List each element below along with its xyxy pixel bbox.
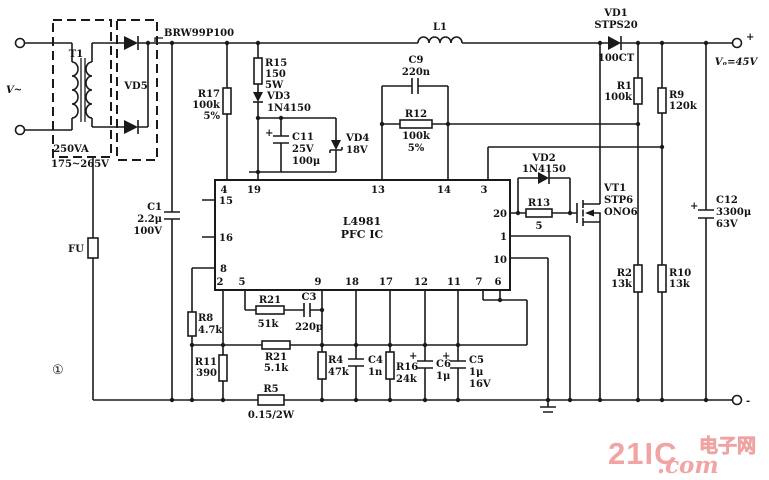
mosfet-arrow <box>585 210 594 217</box>
r5-value: 0.15/2W <box>248 410 295 421</box>
r5-name: R5 <box>263 384 278 395</box>
r9-name: R9 <box>669 90 684 101</box>
r9-icon <box>658 88 666 113</box>
c11-value: 100μ <box>292 156 320 167</box>
c6-value: 1μ <box>436 371 450 382</box>
r12-tol: 5% <box>408 143 425 154</box>
c12-wires <box>698 43 714 400</box>
output-terminal-plus <box>733 39 742 48</box>
r21a-icon <box>256 306 284 314</box>
pin-2: 2 <box>217 277 224 288</box>
c5-plus: + <box>442 351 450 362</box>
c1-voltage: 100V <box>133 226 162 237</box>
pin-12: 12 <box>414 277 428 288</box>
r4-value: 47k <box>328 367 350 378</box>
vd3-part: 1N4150 <box>267 103 311 114</box>
r10-icon <box>658 265 666 292</box>
c9-value: 220n <box>402 67 431 78</box>
r1-name: R1 <box>617 81 632 92</box>
ic-name: L4981 <box>343 215 381 228</box>
c4-value: 1n <box>368 367 383 378</box>
output-voltage-label: Vₒ=45V <box>715 57 759 68</box>
c3-value: 220p <box>295 322 323 333</box>
watermark-suffix: .com <box>657 452 719 479</box>
transformer-rating: 250VA <box>53 144 89 155</box>
r21b-name: R21 <box>265 352 287 363</box>
r8-value: 4.7k <box>198 325 223 336</box>
transformer-core <box>81 58 85 122</box>
c1-value: 2.2μ <box>137 214 162 225</box>
figure-index: ① <box>52 363 64 378</box>
r21b-icon <box>262 341 290 349</box>
dc-bus: L1 VD1 STPS20 100CT <box>418 8 732 64</box>
vd2-part: 1N4150 <box>522 164 566 175</box>
l1-label: L1 <box>433 22 447 33</box>
transformer-box <box>53 20 111 157</box>
ic-l4981: L4981 PFC IC 4 19 13 14 3 15 16 8 20 1 1… <box>192 180 510 290</box>
c3-name: C3 <box>302 292 317 303</box>
r13-icon <box>526 209 552 217</box>
r2-value: 13k <box>611 279 633 290</box>
r21b-value: 5.1k <box>264 363 289 374</box>
r1-icon <box>634 78 642 104</box>
r10-name: R10 <box>669 268 691 279</box>
input-wires <box>25 43 419 130</box>
pin-7: 7 <box>476 277 483 288</box>
vd2-name: VD2 <box>531 153 555 164</box>
r17-icon <box>223 88 231 114</box>
c11-voltage: 25V <box>292 144 314 155</box>
fuse-label: FU <box>68 244 84 255</box>
vd4-name: VD4 <box>345 133 369 144</box>
r15-power: 5W <box>265 80 284 91</box>
r16-value: 24k <box>396 374 418 385</box>
c12-voltage: 63V <box>716 219 738 230</box>
pin-11: 11 <box>447 277 461 288</box>
r11-icon <box>219 355 227 381</box>
pin-14: 14 <box>437 185 451 196</box>
watermark-21ic: 21IC 电子网 .com <box>608 434 756 479</box>
input-terminal-bottom <box>16 126 25 135</box>
output-minus-sign: - <box>746 396 750 407</box>
pin-19: 19 <box>247 185 261 196</box>
diode-vd1-icon <box>608 36 621 50</box>
ic-type: PFC IC <box>341 228 384 241</box>
r15-name: R15 <box>265 58 287 69</box>
vd4-voltage: 18V <box>346 145 368 156</box>
vt1-part1: STP6 <box>604 195 633 206</box>
bridge-diode-bottom-icon <box>124 120 138 134</box>
r10-value: 13k <box>669 279 691 290</box>
pin-9: 9 <box>315 277 322 288</box>
r15-value: 150 <box>265 69 286 80</box>
diode-vd3-icon <box>253 92 263 102</box>
return-wires-right <box>510 236 570 412</box>
input-range: 175~265V <box>51 159 109 170</box>
r12-icon <box>400 120 432 128</box>
c12-value: 3300μ <box>716 207 751 218</box>
c4-name: C4 <box>368 355 383 366</box>
pin-5: 5 <box>239 277 246 288</box>
c12-plus: + <box>690 201 698 212</box>
vt1-part2: ONO6 <box>604 207 638 218</box>
output-plus-sign: + <box>746 32 754 43</box>
r13-value: 5 <box>536 221 543 232</box>
c5-voltage: 16V <box>469 379 491 390</box>
c1-name: C1 <box>147 202 162 213</box>
pin-3: 3 <box>481 185 488 196</box>
c11-name: C11 <box>292 132 314 143</box>
inductor-l1-icon <box>418 37 462 43</box>
r16-name: R16 <box>396 362 418 373</box>
bridge-diode-top-icon <box>124 36 138 50</box>
pin-1: 1 <box>500 232 507 243</box>
pin-10: 10 <box>493 255 507 266</box>
c5-name: C5 <box>469 355 484 366</box>
r15-icon <box>254 58 262 84</box>
c5-value: 1μ <box>469 367 483 378</box>
pin-17: 17 <box>379 277 393 288</box>
r17-name: R17 <box>198 89 220 100</box>
r17-value: 100k <box>192 100 221 111</box>
transformer-primary-coil <box>72 62 78 118</box>
r12-name: R12 <box>405 109 427 120</box>
r8-icon <box>188 312 196 336</box>
pin-8: 8 <box>220 264 227 275</box>
input-voltage-label: V~ <box>6 85 22 96</box>
r11-value: 390 <box>196 368 217 379</box>
r13-name: R13 <box>528 198 550 209</box>
resistor-r17: R17 100k 5% <box>192 43 231 180</box>
bottom-rail: R5 0.15/2W <box>93 384 732 421</box>
r21a-name: R21 <box>259 295 281 306</box>
r4-icon <box>318 352 326 379</box>
pin-18: 18 <box>345 277 359 288</box>
vd1-part: STPS20 <box>594 20 637 31</box>
c9-name: C9 <box>409 55 424 66</box>
zener-vd4-icon <box>331 140 341 150</box>
r4-name: R4 <box>328 355 343 366</box>
c1-wires <box>164 43 180 400</box>
pin-13: 13 <box>371 185 385 196</box>
bridge-name: VD5 <box>123 81 147 92</box>
pin-16: 16 <box>219 233 233 244</box>
vcc-branch: R15 150 5W VD3 1N4150 + C11 25V 100μ VD4… <box>249 43 369 180</box>
vd3-name: VD3 <box>266 91 290 102</box>
r5-icon <box>258 395 284 405</box>
r16-icon <box>386 352 394 379</box>
pin-6: 6 <box>495 277 502 288</box>
r9-value: 120k <box>669 101 698 112</box>
ic-right-returns <box>510 236 570 412</box>
fuse-icon <box>88 238 98 258</box>
pin-15: 15 <box>219 196 233 207</box>
schematic-page: V~ T1 VD5 250VA 175~265V BRW99P100 FU L1… <box>0 0 769 480</box>
r1-value: 100k <box>604 92 633 103</box>
pin-20: 20 <box>493 209 507 220</box>
c12-name: C12 <box>716 195 738 206</box>
c6-plus: + <box>409 351 417 362</box>
output-terminal-minus <box>733 396 742 405</box>
vd1-part2: 100CT <box>598 53 635 64</box>
r21a-value: 51k <box>258 319 280 330</box>
vt1-name: VT1 <box>603 183 626 194</box>
transformer-secondary-coil <box>86 62 92 118</box>
bridge-part-number: BRW99P100 <box>164 28 234 39</box>
r2-name: R2 <box>617 268 632 279</box>
r11-name: R11 <box>195 357 217 368</box>
r17-tol: 5% <box>204 111 221 122</box>
transformer-name: T1 <box>69 49 83 60</box>
mosfet-wires <box>577 43 600 400</box>
pin-4: 4 <box>221 185 228 196</box>
r8-name: R8 <box>198 313 213 324</box>
ic-left-stubs <box>192 200 215 268</box>
pfc-power-supply-schematic: V~ T1 VD5 250VA 175~265V BRW99P100 FU L1… <box>0 0 769 480</box>
r12-value: 100k <box>402 131 431 142</box>
output-cap-c12: + C12 3300μ 63V <box>690 43 751 400</box>
input-terminal-top <box>16 39 25 48</box>
vd1-name: VD1 <box>603 8 627 19</box>
r2-icon <box>634 265 642 292</box>
c11-plus: + <box>265 128 273 139</box>
